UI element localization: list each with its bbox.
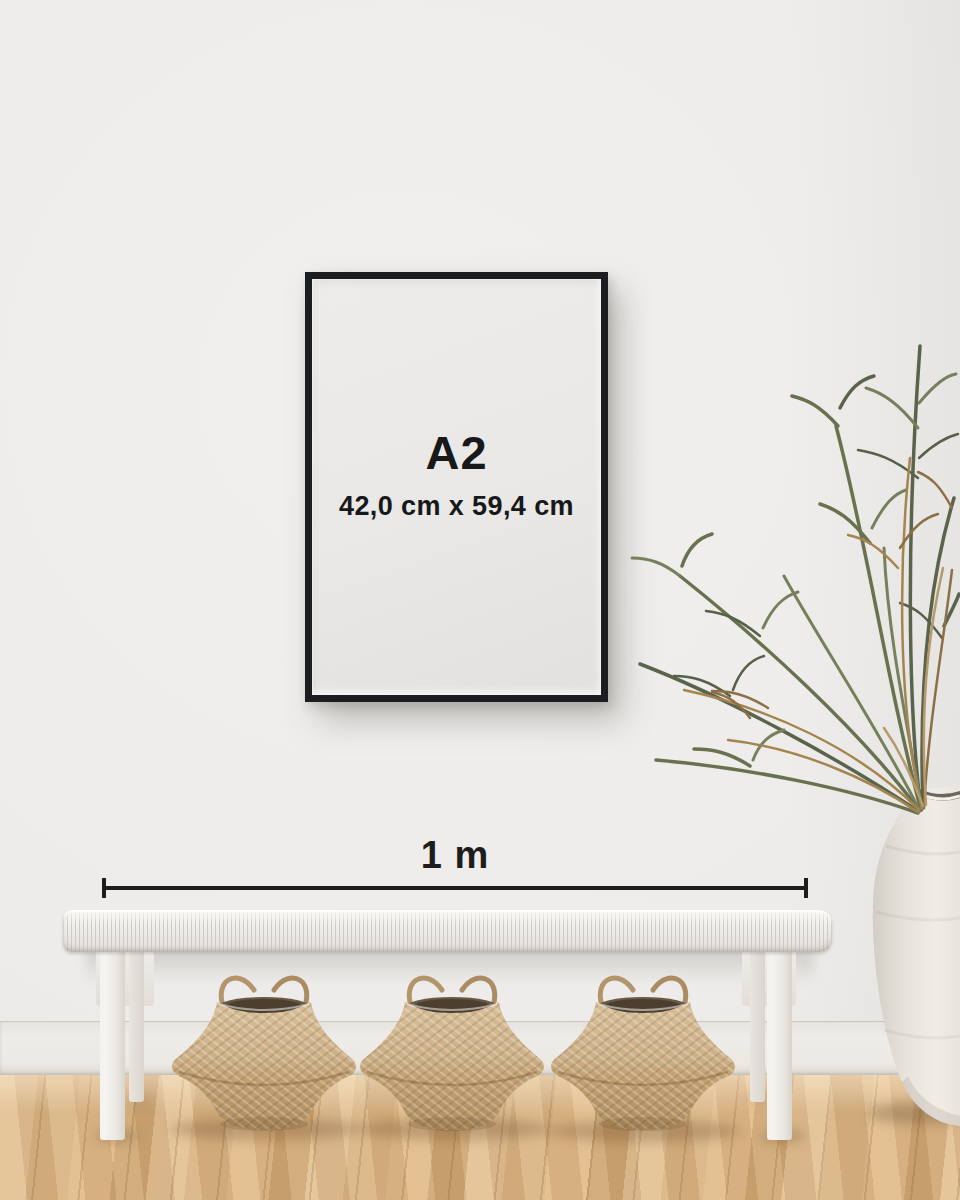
bench-leg-back-left [129, 950, 144, 1102]
measure-tick-right [804, 878, 808, 898]
seagrass-basket-left [164, 966, 364, 1138]
width-measure: 1 m [102, 836, 808, 894]
measure-tick-left [102, 878, 106, 898]
poster-text-group: A2 42,0 cm x 59,4 cm [339, 429, 574, 520]
bench-leg-front-right [767, 950, 792, 1140]
poster-dimensions-label: 42,0 cm x 59,4 cm [339, 493, 574, 520]
bench-leg-front-left [100, 950, 125, 1140]
size-guide-scene: A2 42,0 cm x 59,4 cm 1 m [0, 0, 960, 1200]
bench-seat [63, 910, 832, 952]
picture-frame: A2 42,0 cm x 59,4 cm [305, 272, 608, 702]
poster: A2 42,0 cm x 59,4 cm [312, 279, 601, 695]
seagrass-basket-middle [352, 966, 552, 1138]
palm-plant [588, 308, 960, 828]
measure-label: 1 m [102, 836, 808, 874]
seagrass-basket-right [543, 966, 743, 1138]
bench-leg-back-right [750, 950, 765, 1102]
poster-size-label: A2 [339, 429, 574, 476]
measure-line [102, 886, 808, 890]
floor-vase [856, 784, 960, 1128]
